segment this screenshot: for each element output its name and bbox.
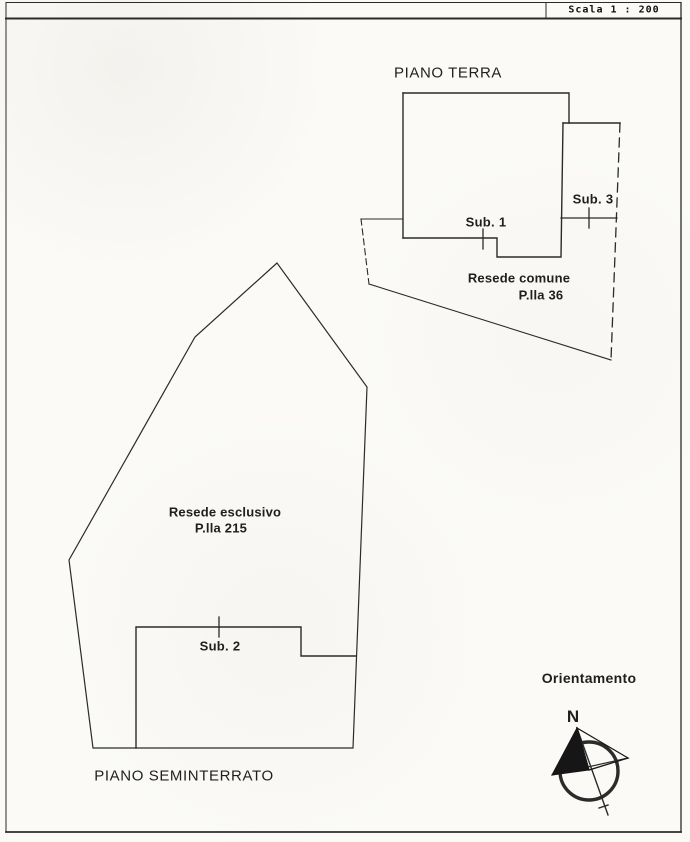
- terra-main-outline-top-right: [403, 93, 569, 123]
- cadastral-plan-sheet: Scala 1 : 200 PIANO TERRA Sub. 1 Sub. 3 …: [0, 0, 690, 842]
- resede-comune-label: Resede comune: [468, 272, 570, 287]
- scale-label: Scala 1 : 200: [568, 4, 659, 16]
- plan-linework: [0, 0, 690, 842]
- resede-esclusivo-label: Resede esclusivo: [169, 506, 281, 521]
- compass-north-label: N: [567, 707, 579, 727]
- resede-comune-west-edge: [361, 219, 369, 284]
- resede-comune-east-dashed-edge: [611, 123, 620, 360]
- seminterrato-building-outline: [136, 627, 356, 748]
- compass-needle-barb: [599, 805, 608, 808]
- sub1-label: Sub. 1: [466, 216, 507, 231]
- sub2-label: Sub. 2: [200, 640, 241, 655]
- resede-comune-south-edge: [369, 284, 611, 360]
- resede-comune-parcel-label: P.lla 36: [519, 289, 564, 304]
- piano-seminterrato-title: PIANO SEMINTERRATO: [94, 767, 273, 784]
- piano-terra-title: PIANO TERRA: [394, 64, 502, 81]
- sub3-label: Sub. 3: [573, 193, 614, 208]
- orientation-title: Orientamento: [542, 670, 637, 686]
- resede-esclusivo-parcel-label: P.lla 215: [195, 522, 247, 537]
